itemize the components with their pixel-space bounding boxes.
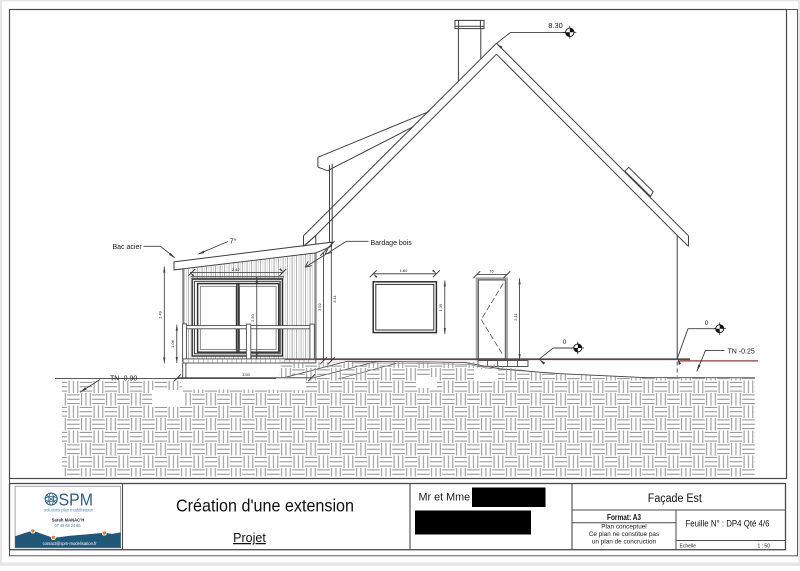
svg-text:Création d'une extension: Création d'une extension (176, 496, 354, 516)
svg-text:Format: A3: Format: A3 (607, 513, 641, 522)
svg-text:0: 0 (705, 320, 709, 327)
svg-text:3.11: 3.11 (332, 294, 337, 302)
svg-text:Bac acier: Bac acier (113, 244, 143, 251)
svg-text:SPM: SPM (59, 489, 94, 509)
svg-text:Bardage bois: Bardage bois (371, 240, 413, 247)
svg-text:2.50: 2.50 (250, 313, 255, 322)
svg-text:Plan conceptuel: Plan conceptuel (601, 524, 646, 531)
svg-text:0: 0 (563, 339, 567, 346)
svg-text:1 : 50: 1 : 50 (757, 543, 770, 549)
svg-text:1.06: 1.06 (170, 339, 175, 348)
svg-text:2.92: 2.92 (317, 302, 322, 311)
svg-text:3.50: 3.50 (242, 372, 251, 377)
svg-text:1.60: 1.60 (400, 268, 409, 273)
svg-text:Feuille N° : DP4 Qté 4/6: Feuille N° : DP4 Qté 4/6 (686, 519, 770, 529)
svg-text:2.42: 2.42 (232, 267, 241, 272)
svg-text:contact@spm-modelisation.fr: contact@spm-modelisation.fr (43, 541, 98, 546)
svg-text:1.35: 1.35 (438, 303, 443, 312)
svg-text:solutions plan modélisation: solutions plan modélisation (44, 508, 94, 513)
svg-text:un plan de concruction: un plan de concruction (592, 539, 657, 546)
svg-text:Echelle: Echelle (680, 543, 697, 549)
svg-text:2.11: 2.11 (513, 312, 518, 320)
svg-text:TN -0.25: TN -0.25 (728, 348, 755, 355)
svg-text:76: 76 (489, 269, 494, 274)
svg-text:Projet: Projet (233, 531, 266, 545)
svg-text:07 49 68 24 86: 07 49 68 24 86 (55, 523, 82, 528)
svg-text:TN -0.90: TN -0.90 (110, 375, 137, 382)
svg-text:7°: 7° (230, 237, 237, 246)
svg-text:Ce plan ne constitue pas: Ce plan ne constitue pas (589, 531, 659, 538)
svg-text:2.49: 2.49 (158, 310, 163, 319)
svg-text:Façade Est: Façade Est (648, 493, 703, 505)
svg-text:8.30: 8.30 (548, 21, 563, 30)
svg-text:Mr et Mme: Mr et Mme (419, 492, 471, 504)
